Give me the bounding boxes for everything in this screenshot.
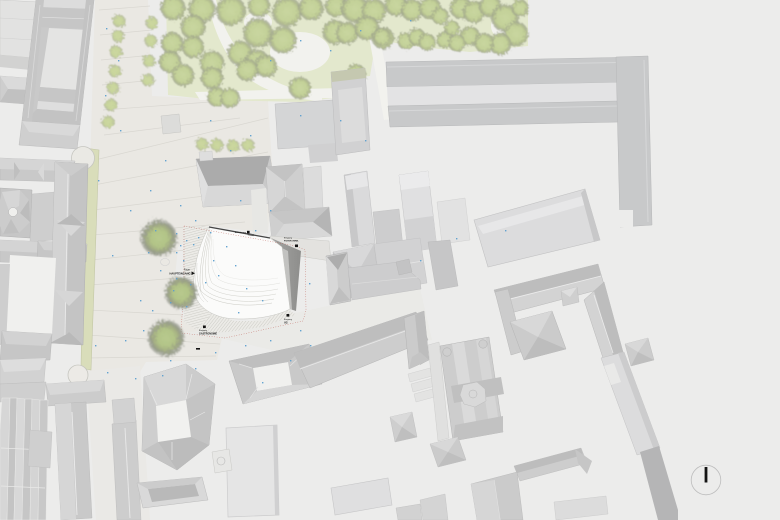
svg-text:UG: UG bbox=[284, 321, 288, 324]
svg-text:FOYER VERK.: FOYER VERK. bbox=[284, 241, 299, 243]
svg-text:Foyer: Foyer bbox=[184, 269, 190, 272]
svg-text:Anlieferung: Anlieferung bbox=[235, 231, 247, 234]
svg-text:Eingang: Eingang bbox=[284, 238, 293, 240]
svg-text:GASTRONOMIE: GASTRONOMIE bbox=[199, 333, 217, 336]
svg-text:HAUPTEINGANG: HAUPTEINGANG bbox=[169, 272, 190, 276]
